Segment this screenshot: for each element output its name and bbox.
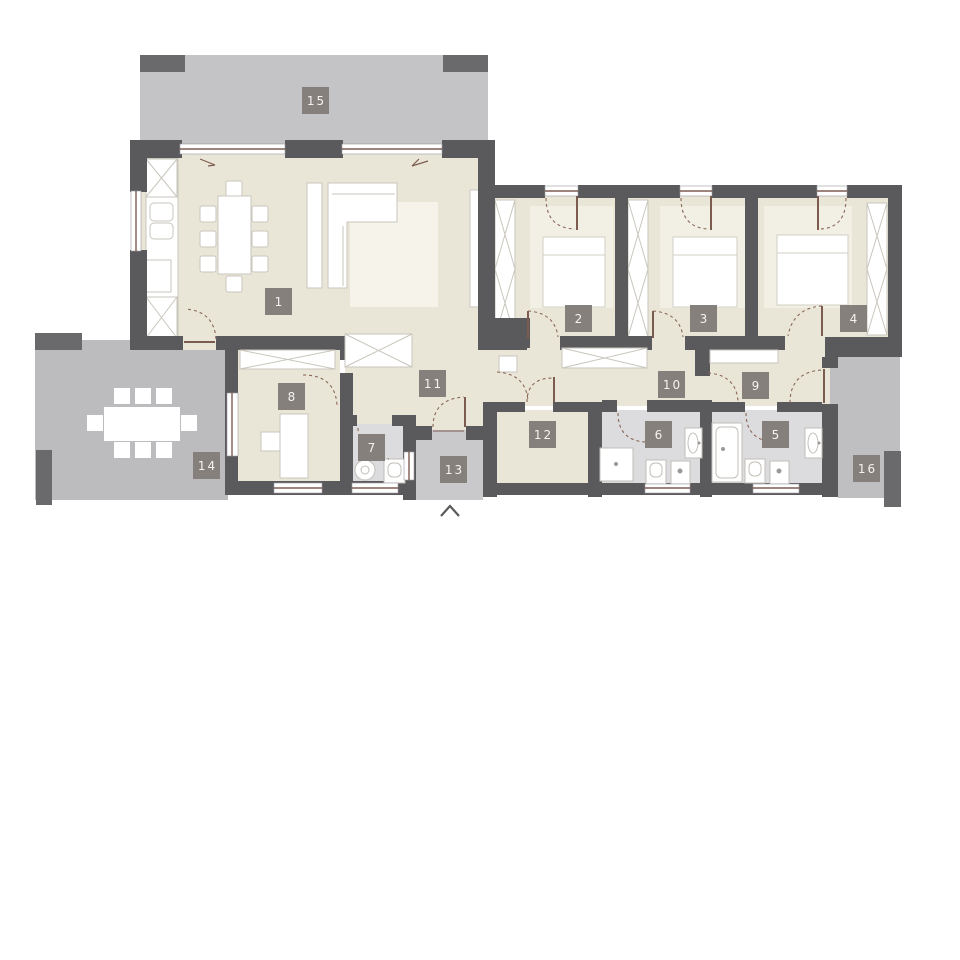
bed	[777, 235, 848, 305]
entrance-arrow-icon	[441, 506, 459, 516]
toilet-bowl	[388, 463, 401, 477]
bench	[710, 350, 778, 363]
terrace-chair	[135, 388, 151, 404]
toilet-bowl	[650, 463, 662, 477]
dining-chair	[200, 256, 216, 272]
room-label-3: 3	[690, 305, 717, 332]
room-label-16: 16	[853, 455, 880, 482]
room-label-12: 12	[529, 421, 556, 448]
floor-plan-drawing	[0, 0, 960, 960]
post	[443, 55, 488, 72]
dining-table	[218, 196, 251, 274]
shelf	[307, 183, 322, 288]
terrace-chair	[135, 442, 151, 458]
washbasin-bowl	[808, 433, 818, 453]
washbasin-tap	[818, 442, 821, 445]
bidet-drain	[777, 469, 782, 474]
post	[35, 333, 82, 350]
post	[140, 55, 185, 72]
room-label-6: 6	[645, 421, 672, 448]
shower-drain	[614, 462, 618, 466]
desk	[280, 414, 308, 478]
washbasin-bowl	[688, 433, 698, 453]
room-label-11: 11	[419, 370, 446, 397]
kitchen-sink	[150, 203, 173, 221]
bed	[673, 237, 737, 307]
dining-chair	[200, 206, 216, 222]
bathtub-drain	[721, 447, 725, 451]
toilet-bowl	[749, 462, 761, 476]
dining-chair	[226, 276, 242, 292]
terrace-chair	[114, 442, 130, 458]
terrace-chair	[181, 415, 197, 431]
room-label-7: 7	[358, 434, 385, 461]
wardrobe	[495, 200, 515, 337]
bed	[543, 237, 605, 307]
terrace-chair	[87, 415, 103, 431]
kitchen-cooktop	[146, 260, 171, 292]
wardrobe	[867, 203, 887, 335]
dining-chair	[200, 231, 216, 247]
dining-chair	[252, 231, 268, 247]
desk-chair	[261, 432, 280, 451]
post	[884, 451, 901, 507]
room-label-9: 9	[742, 372, 769, 399]
washbasin-tap	[698, 442, 701, 445]
kitchen-sink-2	[150, 223, 173, 239]
room-label-14: 14	[193, 452, 220, 479]
dining-chair	[226, 181, 242, 197]
room-label-1: 1	[265, 288, 292, 315]
terrace-chair	[114, 388, 130, 404]
terrace-table	[104, 407, 180, 441]
floor-plan: 1 2 3 4 5 6 7 8 9 10 11 12 13 14 15 16	[0, 0, 960, 960]
bathtub-inner	[716, 427, 738, 478]
bidet-drain	[678, 469, 683, 474]
wardrobe	[628, 200, 648, 337]
dining-chair	[252, 206, 268, 222]
room-label-8: 8	[278, 383, 305, 410]
terrace-chair	[156, 442, 172, 458]
terrace-chair	[156, 388, 172, 404]
room-label-15: 15	[302, 87, 329, 114]
room-label-10: 10	[658, 371, 685, 398]
room-label-4: 4	[840, 305, 867, 332]
post	[36, 450, 52, 505]
shelf-small	[499, 356, 517, 372]
washing-machine-drum	[361, 466, 369, 474]
room-label-2: 2	[565, 305, 592, 332]
room-label-13: 13	[440, 456, 467, 483]
dining-chair	[252, 256, 268, 272]
room-label-5: 5	[762, 421, 789, 448]
